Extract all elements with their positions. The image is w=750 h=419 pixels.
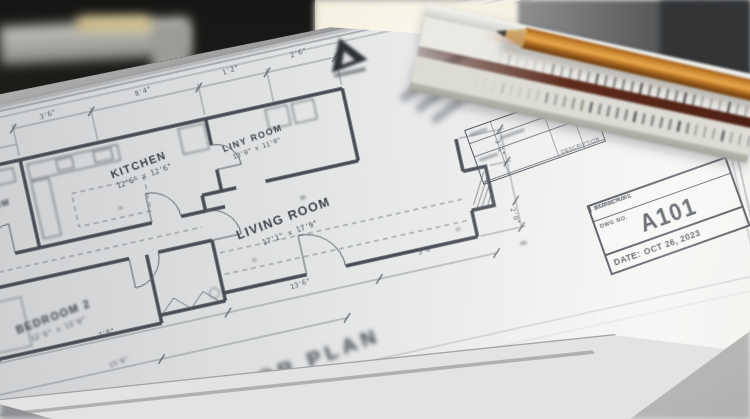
blueprint-photo: 3'6" 8'4" 1'2" 2'6" 3'1" 2'0" 7'8" 13'6"… bbox=[0, 0, 750, 419]
background-pencil-blur bbox=[76, 16, 152, 31]
pencil-lead-point bbox=[495, 28, 506, 37]
